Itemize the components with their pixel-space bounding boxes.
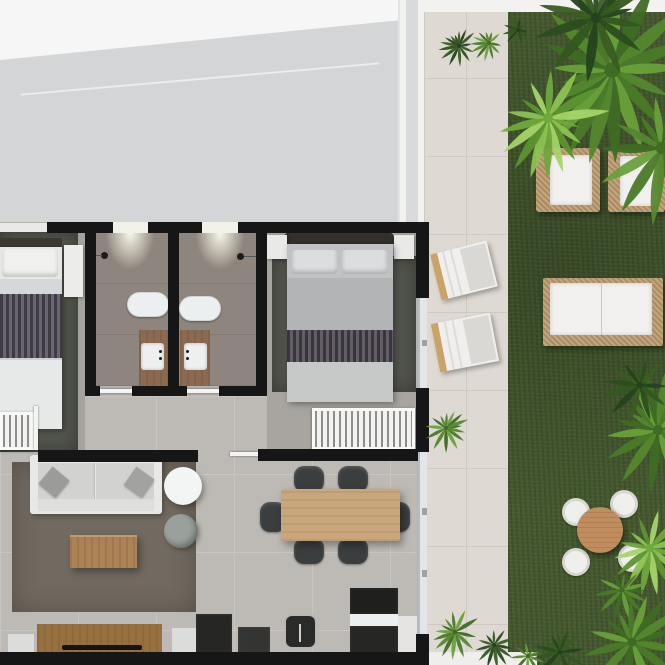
bedroom1-door-leaf (34, 406, 38, 450)
sofa-front-edge (38, 499, 154, 511)
shower-head (237, 253, 244, 260)
dining-chair (338, 538, 368, 564)
bed-right-pillow (292, 250, 337, 274)
kitchen-counter-gap (350, 614, 398, 626)
radiator-left (0, 412, 34, 450)
armchair-cushion (550, 155, 592, 205)
bed-left-sheet (0, 279, 62, 294)
kitchen-sink (286, 616, 315, 647)
daybed-seam (601, 283, 602, 335)
wall-living-top (38, 450, 198, 462)
bed-right-duvet (287, 278, 393, 330)
wall-bath-bottom (132, 386, 187, 396)
radiator-right (312, 408, 415, 450)
side-table (164, 467, 202, 505)
coffee-table (70, 535, 137, 568)
toilet-bath2 (179, 296, 221, 321)
kitchen-appliance (238, 627, 270, 653)
wall-bedroom2-bottom (258, 449, 418, 461)
bed-left-pillow (2, 249, 58, 277)
faucet (186, 350, 189, 353)
bed-right-headboard (284, 232, 394, 244)
vanity-bath2 (180, 330, 210, 386)
nightstand (394, 235, 414, 259)
faucet (159, 357, 162, 360)
glass-mullion (422, 340, 427, 346)
tv (62, 645, 142, 650)
wall-right-exterior (416, 388, 429, 452)
wall-right-exterior (416, 222, 429, 298)
kitchen-cabinet-light (8, 634, 34, 653)
bistro-chair (562, 548, 590, 576)
bed-left (0, 247, 62, 429)
kitchen-appliance (350, 626, 398, 654)
tv-console (37, 624, 162, 653)
toilet-bath1 (127, 292, 169, 317)
faucet (186, 357, 189, 360)
nightstand (64, 245, 83, 297)
closet-light-glow (196, 233, 244, 269)
bed-right-pillow (342, 250, 387, 274)
glass-door-bedroom2 (418, 298, 427, 388)
bed-right-runner (287, 330, 393, 362)
bed-right (287, 244, 393, 402)
shower-arm (244, 256, 256, 257)
garden-armchair (536, 148, 600, 212)
shower-head (101, 252, 108, 259)
wall-bath-divider (168, 232, 179, 396)
wall-bottom (0, 652, 417, 665)
door-leaf-white (398, 616, 417, 656)
armchair-cushion (620, 156, 658, 206)
closet-light-bar (113, 222, 148, 233)
wall-bath-bottom (85, 386, 100, 396)
kitchen-cabinet-light (172, 628, 197, 653)
glass-mullion (422, 570, 427, 577)
bath1-door-leaf (100, 389, 132, 393)
building-facade-edge (398, 0, 424, 228)
glass-door-living (418, 452, 427, 634)
pouf (164, 514, 198, 548)
bistro-table (577, 507, 623, 553)
closet-light-bar (202, 222, 238, 233)
bistro-chair (618, 544, 646, 572)
wall-bath-bottom (219, 386, 267, 396)
floor-plan-render (0, 0, 665, 665)
dining-chair (294, 538, 324, 564)
garden-armchair (608, 150, 665, 212)
bedroom2-door-leaf (230, 452, 258, 456)
bath2-door-leaf (187, 389, 219, 393)
wall-bath1-left (85, 232, 96, 396)
dining-table (281, 489, 400, 541)
bed-left-headboard (0, 238, 62, 247)
wall-bath2-right (256, 232, 267, 396)
closet-light-glow (106, 233, 154, 269)
plot-edge-bottom (417, 652, 537, 665)
nightstand (267, 235, 287, 259)
bed-right-duvet-foot (287, 362, 393, 402)
vanity-bath1 (139, 330, 168, 386)
plot-edge-top (424, 0, 665, 12)
garden-daybed (543, 278, 663, 346)
sofa (30, 455, 162, 514)
wall-right-exterior (416, 634, 429, 665)
wall-top (47, 222, 113, 233)
kitchen-faucet (299, 624, 301, 642)
lounger-back (463, 315, 497, 364)
kitchen-tall-cabinet (350, 588, 398, 614)
kitchen-appliance (196, 614, 232, 653)
facade-recess (406, 0, 418, 228)
glass-mullion (422, 508, 427, 515)
faucet (159, 350, 162, 353)
window-sill (0, 223, 47, 232)
bed-left-runner (0, 294, 62, 358)
